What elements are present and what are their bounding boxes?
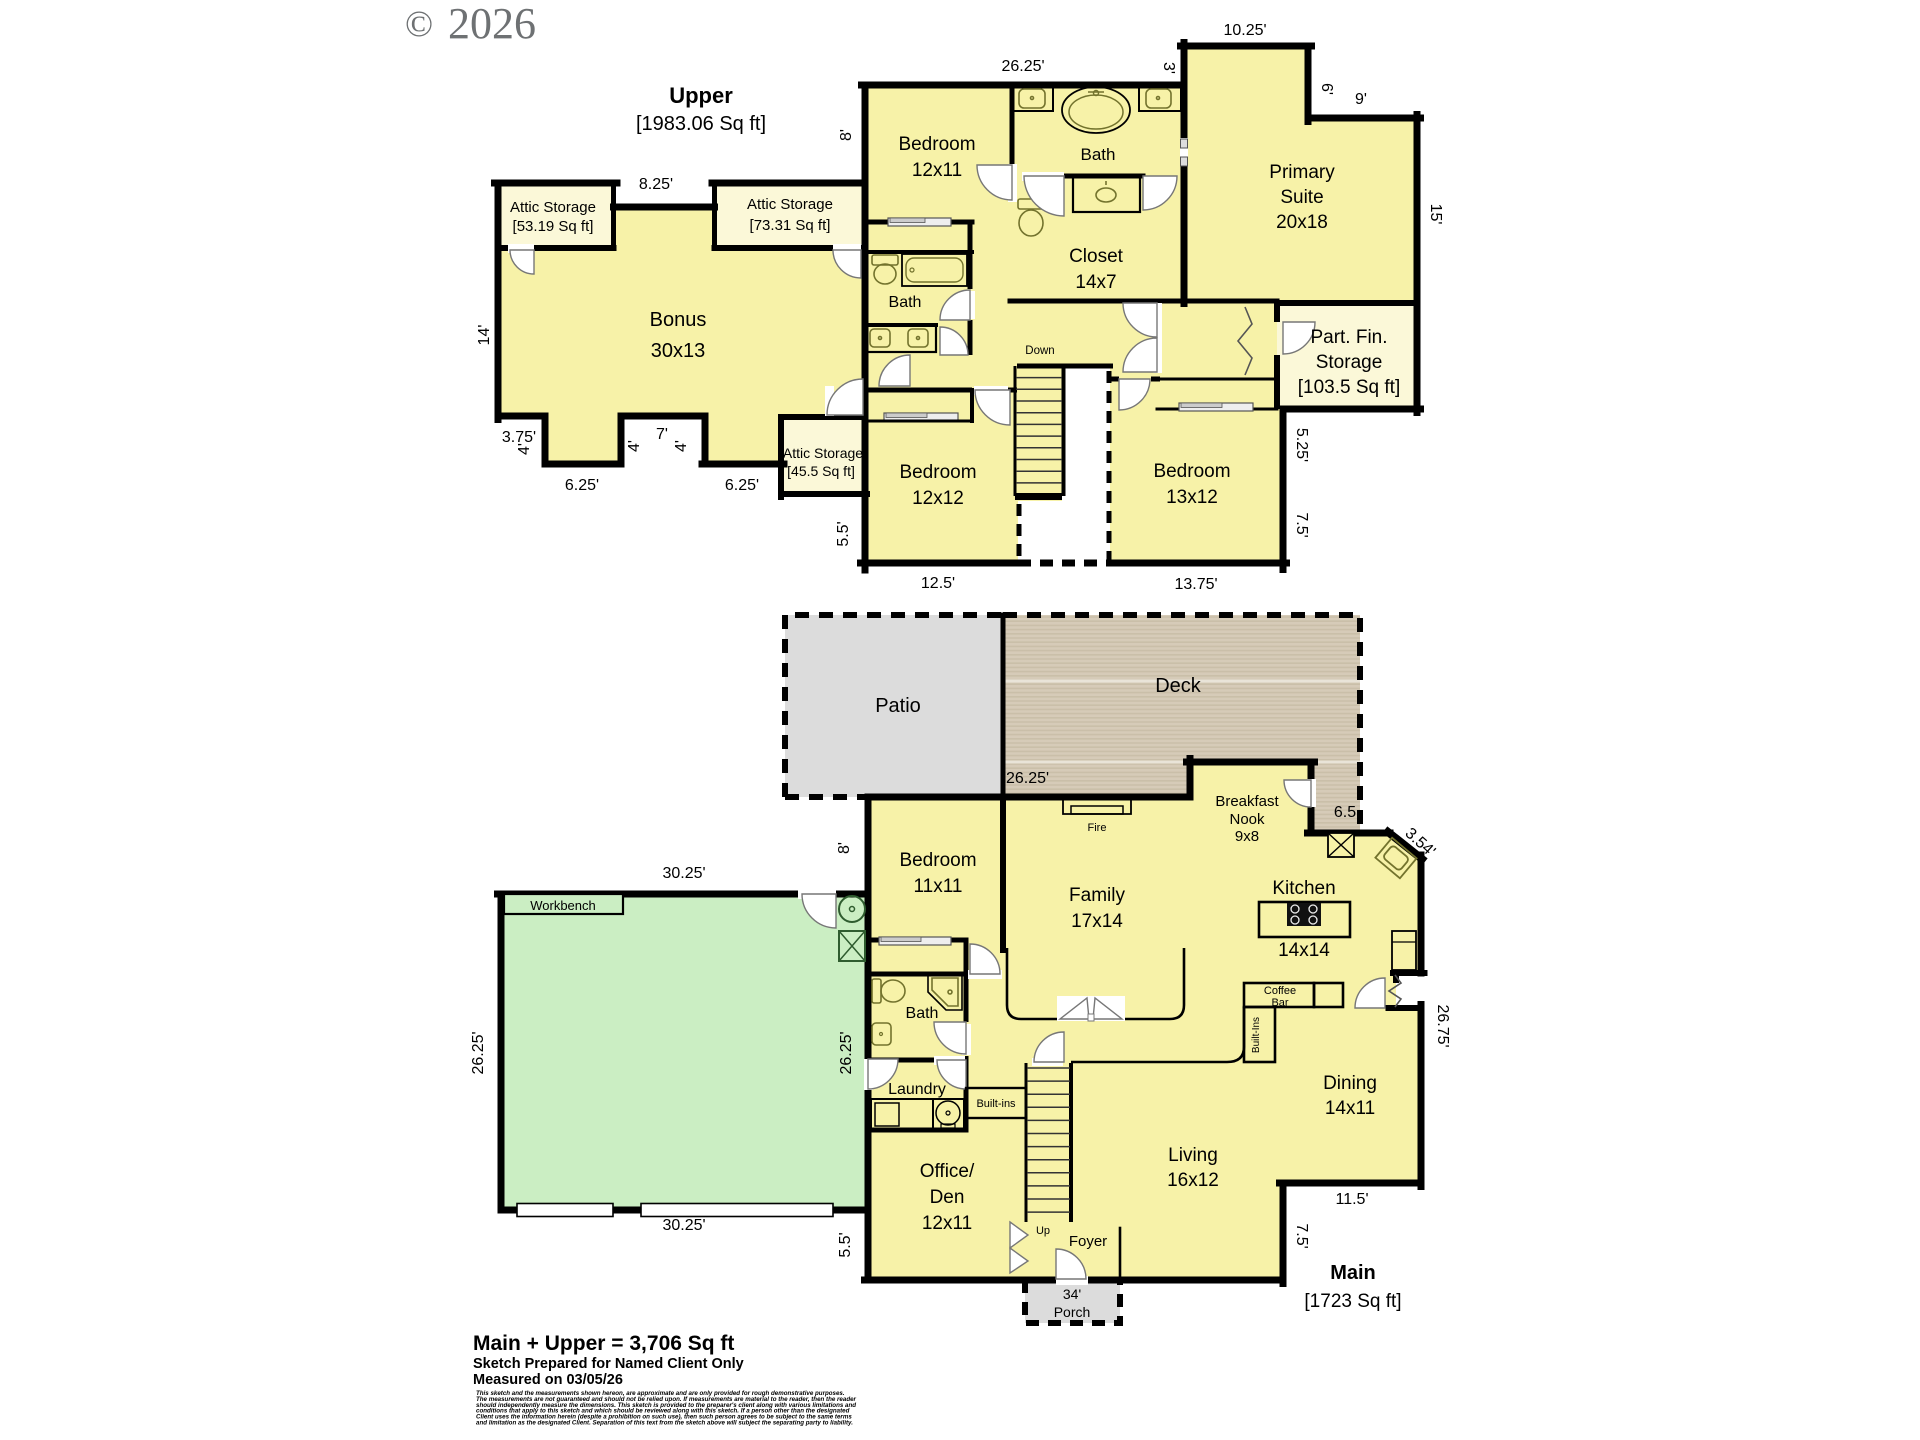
- svg-text:15': 15': [1427, 204, 1444, 225]
- svg-text:30.25': 30.25': [662, 1217, 705, 1234]
- svg-text:9x8: 9x8: [1235, 828, 1259, 845]
- svg-text:[73.31 Sq ft]: [73.31 Sq ft]: [750, 217, 831, 234]
- svg-text:11x11: 11x11: [914, 876, 963, 897]
- svg-text:14': 14': [476, 325, 493, 346]
- svg-text:Up: Up: [1036, 1225, 1050, 1237]
- svg-text:16x12: 16x12: [1167, 1170, 1219, 1191]
- svg-text:Laundry: Laundry: [888, 1081, 946, 1098]
- svg-text:8': 8': [838, 129, 855, 141]
- svg-text:Primary: Primary: [1269, 162, 1335, 183]
- svg-text:and limitation as the designat: and limitation as the designated Client.…: [476, 1420, 853, 1427]
- svg-text:Down: Down: [1025, 345, 1054, 357]
- svg-text:Living: Living: [1168, 1145, 1218, 1166]
- svg-text:Bedroom: Bedroom: [899, 462, 976, 483]
- svg-text:3': 3': [1160, 62, 1177, 74]
- svg-text:Suite: Suite: [1280, 187, 1323, 208]
- svg-text:Breakfast: Breakfast: [1215, 793, 1279, 810]
- svg-text:7': 7': [656, 426, 668, 443]
- svg-text:Part. Fin.: Part. Fin.: [1310, 327, 1387, 348]
- svg-text:Bedroom: Bedroom: [899, 850, 976, 871]
- svg-text:26.75': 26.75': [1434, 1004, 1451, 1047]
- svg-text:Main + Upper = 3,706 Sq ft: Main + Upper = 3,706 Sq ft: [473, 1332, 734, 1355]
- svg-text:5.5': 5.5': [837, 1232, 854, 1257]
- svg-text:Foyer: Foyer: [1069, 1233, 1107, 1250]
- svg-text:14x11: 14x11: [1325, 1098, 1375, 1119]
- svg-text:6.25': 6.25': [725, 477, 759, 494]
- svg-text:30x13: 30x13: [651, 340, 706, 362]
- svg-text:7.5': 7.5': [1293, 1223, 1310, 1248]
- svg-text:8': 8': [836, 842, 853, 854]
- svg-text:©: ©: [405, 4, 433, 45]
- svg-text:17x14: 17x14: [1071, 911, 1123, 932]
- svg-text:Measured on 03/05/26: Measured on 03/05/26: [473, 1372, 623, 1388]
- svg-text:7.5': 7.5': [1293, 512, 1310, 537]
- svg-text:6.5: 6.5: [1334, 804, 1356, 821]
- svg-text:26.25': 26.25': [470, 1031, 487, 1074]
- svg-text:12x12: 12x12: [912, 488, 964, 509]
- svg-text:Closet: Closet: [1069, 246, 1124, 267]
- svg-text:13.75': 13.75': [1174, 576, 1217, 593]
- svg-text:[53.19 Sq ft]: [53.19 Sq ft]: [513, 218, 594, 235]
- svg-text:Upper: Upper: [669, 83, 733, 108]
- svg-text:30.25': 30.25': [662, 865, 705, 882]
- svg-text:2026: 2026: [448, 0, 536, 48]
- svg-text:Bath: Bath: [906, 1005, 939, 1022]
- svg-text:Deck: Deck: [1155, 675, 1202, 697]
- svg-text:12.5': 12.5': [921, 575, 955, 592]
- svg-text:Built-Ins: Built-Ins: [1251, 1017, 1262, 1053]
- svg-text:Porch: Porch: [1054, 1304, 1091, 1320]
- svg-text:Attic Storage: Attic Storage: [747, 196, 833, 213]
- svg-text:8.25': 8.25': [639, 176, 673, 193]
- svg-text:26.25': 26.25': [1001, 58, 1044, 75]
- svg-text:12x11: 12x11: [912, 160, 962, 181]
- svg-text:34': 34': [1063, 1286, 1081, 1302]
- svg-text:Attic Storage: Attic Storage: [783, 445, 863, 461]
- svg-text:20x18: 20x18: [1276, 212, 1328, 233]
- svg-text:Family: Family: [1069, 885, 1125, 906]
- svg-text:11.5': 11.5': [1335, 1191, 1368, 1208]
- svg-text:Bedroom: Bedroom: [898, 134, 975, 155]
- svg-text:13x12: 13x12: [1166, 487, 1218, 508]
- svg-text:Bonus: Bonus: [650, 309, 707, 331]
- svg-text:26.25': 26.25': [1006, 770, 1049, 787]
- svg-text:14x14: 14x14: [1278, 940, 1330, 961]
- svg-text:26.25': 26.25': [838, 1031, 855, 1074]
- svg-text:[1723 Sq ft]: [1723 Sq ft]: [1304, 1291, 1401, 1312]
- svg-text:Built-ins: Built-ins: [976, 1098, 1016, 1110]
- svg-text:9': 9': [1355, 91, 1367, 108]
- svg-text:Coffee: Coffee: [1264, 985, 1296, 997]
- svg-text:12x11: 12x11: [922, 1213, 972, 1234]
- svg-text:[45.5 Sq ft]: [45.5 Sq ft]: [787, 463, 855, 479]
- svg-text:Attic Storage: Attic Storage: [510, 199, 596, 216]
- svg-text:[103.5 Sq ft]: [103.5 Sq ft]: [1298, 377, 1400, 398]
- svg-text:10.25': 10.25': [1223, 22, 1266, 39]
- svg-text:[1983.06 Sq ft]: [1983.06 Sq ft]: [636, 113, 766, 135]
- svg-text:Bedroom: Bedroom: [1153, 461, 1230, 482]
- svg-text:Kitchen: Kitchen: [1272, 878, 1335, 899]
- svg-text:Main: Main: [1330, 1262, 1376, 1284]
- svg-text:Patio: Patio: [875, 695, 921, 717]
- svg-text:4': 4': [516, 443, 533, 455]
- svg-text:Storage: Storage: [1316, 352, 1383, 373]
- svg-text:5.25': 5.25': [1293, 428, 1310, 462]
- svg-text:Den: Den: [930, 1187, 965, 1208]
- svg-text:6.25': 6.25': [565, 477, 599, 494]
- svg-text:Bath: Bath: [889, 294, 922, 311]
- svg-text:4': 4': [626, 440, 643, 452]
- svg-text:Bar: Bar: [1271, 997, 1288, 1009]
- svg-text:Nook: Nook: [1229, 811, 1265, 828]
- svg-text:Sketch Prepared for Named Clie: Sketch Prepared for Named Client Only: [473, 1356, 744, 1372]
- svg-text:14x7: 14x7: [1075, 272, 1116, 293]
- svg-text:Workbench: Workbench: [530, 898, 596, 913]
- svg-text:6': 6': [1318, 83, 1335, 95]
- svg-text:5.5': 5.5': [835, 521, 852, 546]
- svg-text:Bath: Bath: [1081, 145, 1116, 164]
- svg-text:Dining: Dining: [1323, 1073, 1377, 1094]
- svg-text:Fire: Fire: [1088, 822, 1107, 834]
- svg-text:4': 4': [673, 440, 690, 452]
- svg-text:Office/: Office/: [920, 1161, 975, 1182]
